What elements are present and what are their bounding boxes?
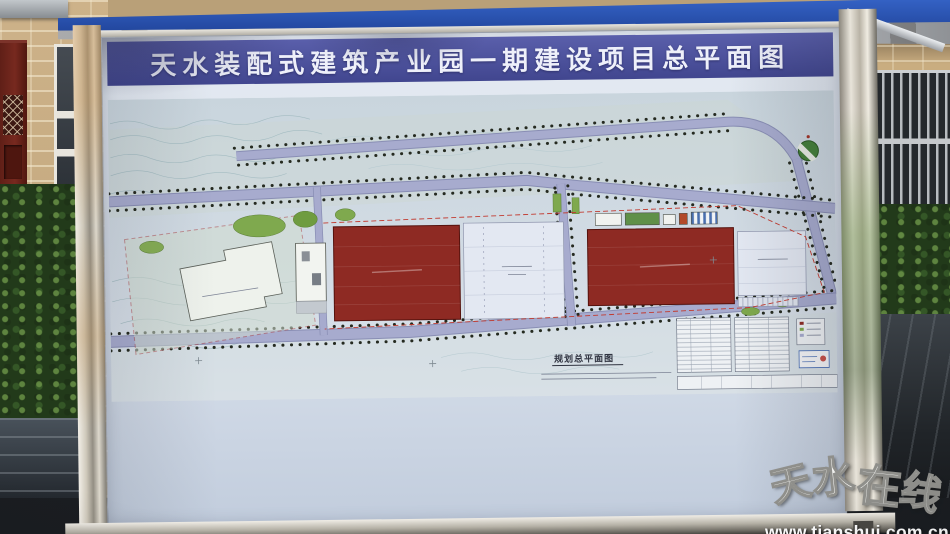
photo-scene: 天水装配式建筑产业园一期建设项目总平面图 — [0, 0, 950, 534]
ancillary-buildings — [595, 212, 717, 226]
plan-caption: 规划总平面图 — [554, 352, 614, 364]
site-plan-drawing: 规划总平面图 — [108, 90, 838, 401]
watermark-char: 水 — [809, 442, 857, 510]
door-lattice-window — [3, 95, 23, 135]
watermark-brand: 天 水 在 线 — [764, 446, 950, 510]
storage-yard-1 — [463, 222, 564, 319]
door-panel — [4, 145, 22, 179]
office-building — [296, 243, 327, 313]
site-plan: 规划总平面图 — [108, 90, 838, 401]
indicator-table-1 — [677, 318, 732, 373]
title-block — [677, 374, 837, 389]
board-panel: 天水装配式建筑产业园一期建设项目总平面图 — [101, 27, 847, 525]
frame-post-right — [839, 9, 884, 511]
indicator-table-2 — [735, 317, 790, 372]
red-door — [0, 40, 27, 193]
legend-box — [797, 318, 825, 344]
hedge-left — [0, 184, 84, 424]
factory-building-2 — [587, 228, 734, 306]
board-title: 天水装配式建筑产业园一期建设项目总平面图 — [150, 36, 790, 81]
title-banner: 天水装配式建筑产业园一期建设项目总平面图 — [107, 32, 834, 85]
design-stamp — [799, 350, 829, 367]
watermark: 天 水 在 线 www.tianshui.com.cn — [764, 446, 950, 534]
parking-row — [738, 297, 798, 307]
factory-building-1 — [333, 225, 460, 321]
